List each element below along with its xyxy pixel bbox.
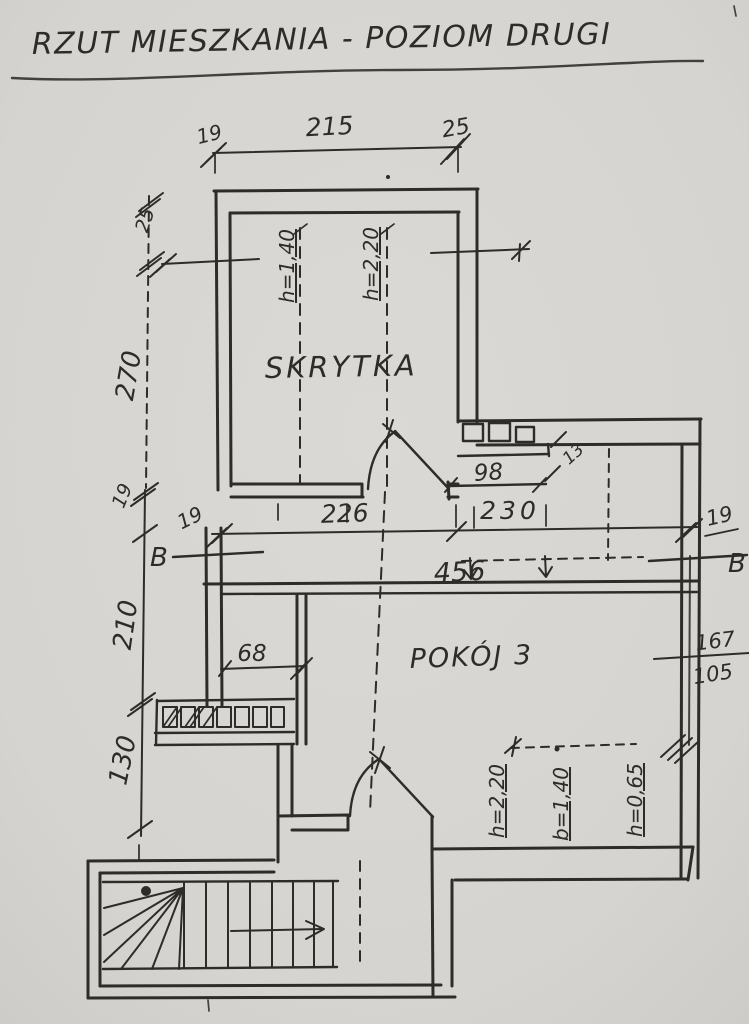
- dim-niche-98: 98: [473, 459, 504, 487]
- scanned-floor-plan-page: RZUT MIESZKANIA - POZIOM DRUGI: [0, 0, 749, 1024]
- paper-background: [0, 0, 749, 1024]
- height-bottom-right: h=0,65: [623, 763, 647, 837]
- dim-total-456: 456: [433, 556, 486, 590]
- section-letter-left: B: [150, 543, 168, 573]
- dim-top-span: 215: [305, 111, 354, 142]
- room-label-skrytka: SKRYTKA: [265, 348, 418, 385]
- room-label-pokoj3: POKÓJ 3: [409, 639, 534, 675]
- height-skrytka-right: h=2,20: [359, 227, 383, 301]
- dim-right-167: 167: [694, 627, 737, 656]
- dim-alcove-68: 68: [237, 641, 266, 667]
- height-bottom-left: h=2,20: [485, 764, 509, 838]
- section-letter-right: B: [728, 549, 746, 579]
- floor-plan-drawing: RZUT MIESZKANIA - POZIOM DRUGI: [0, 0, 749, 1024]
- dim-top-wall-right: 25: [440, 114, 472, 143]
- newel-post: [141, 886, 151, 896]
- dim-mid-226: 226: [320, 498, 369, 529]
- dim-mid-230: 230: [480, 496, 540, 525]
- height-skrytka-left: h=1,40: [275, 229, 299, 303]
- height-bottom-mid: b=1,40: [549, 767, 573, 841]
